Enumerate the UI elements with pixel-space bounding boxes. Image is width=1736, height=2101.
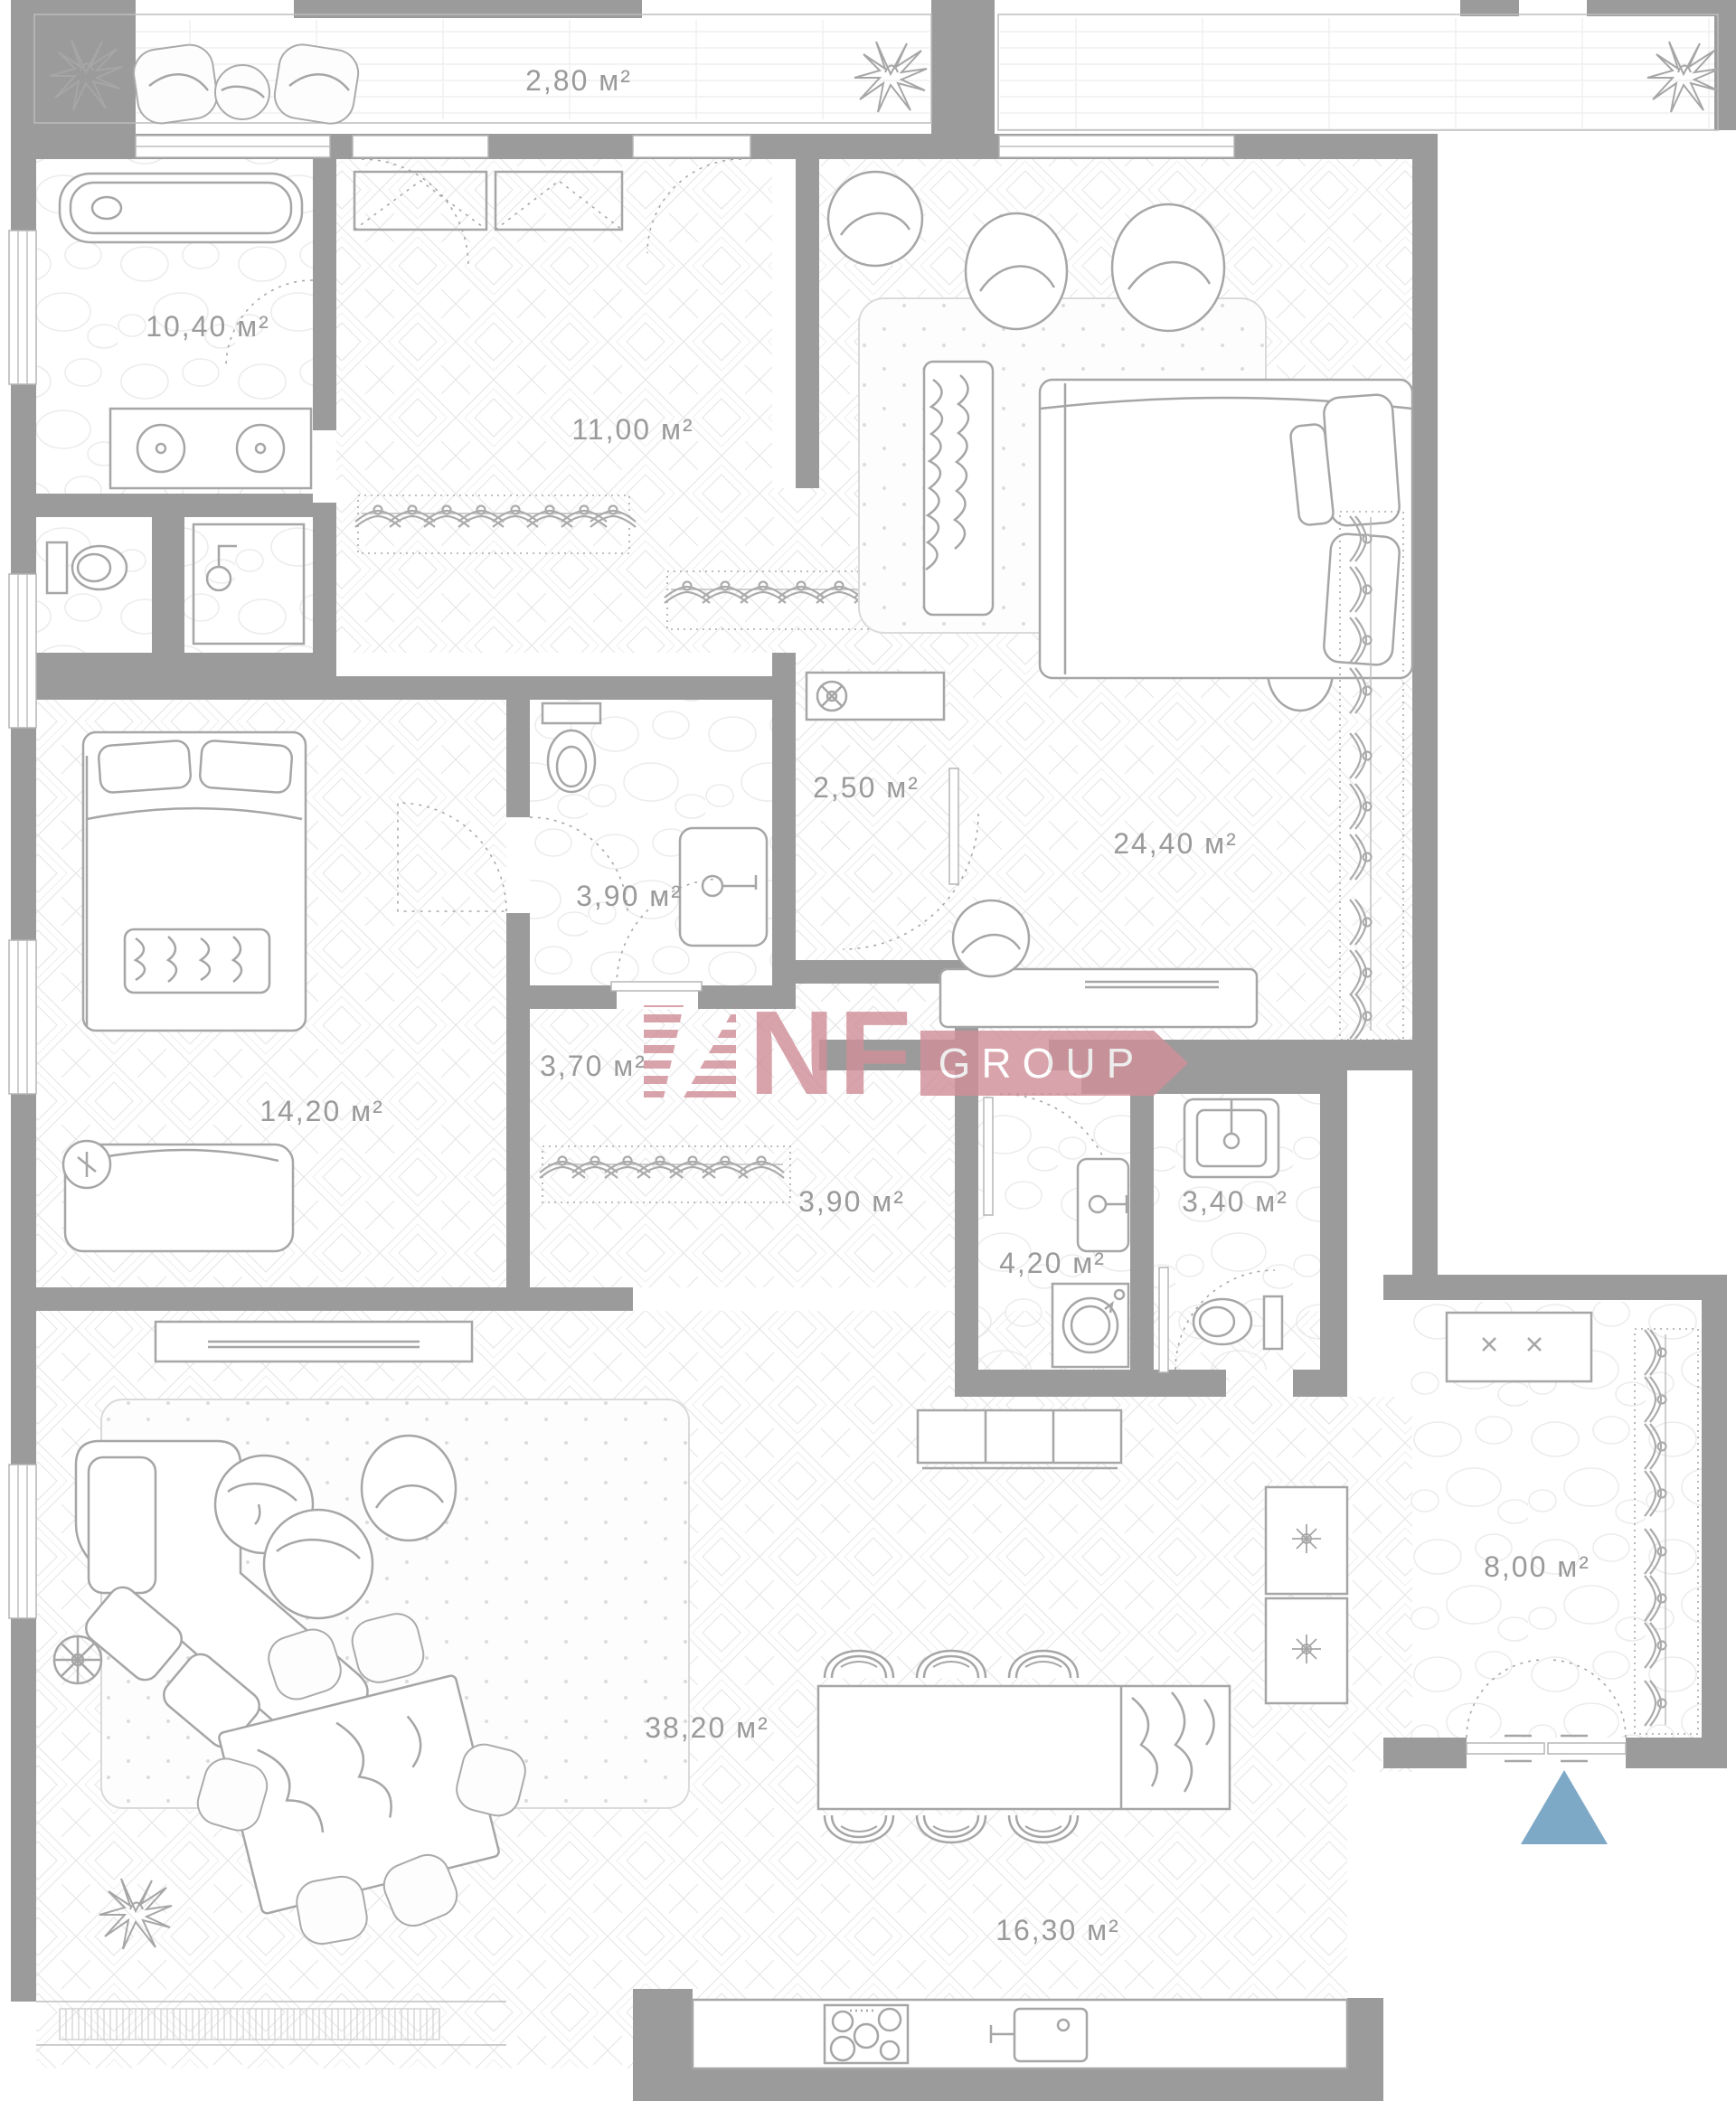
room-label-laundry: 4,20 м² (999, 1247, 1106, 1279)
room-label-corridor-2: 3,90 м² (798, 1185, 905, 1218)
door-leaf (1159, 1267, 1168, 1372)
tv-console (156, 1322, 472, 1361)
washing-machine (1052, 1284, 1128, 1367)
armchair (362, 1436, 456, 1540)
room-label-master-bath: 10,40 м² (146, 310, 270, 343)
bathtub (60, 174, 302, 242)
bed-double (1040, 380, 1412, 678)
bed-double (83, 732, 306, 1031)
lounge-chair (131, 42, 221, 126)
window-bedroom-master (999, 136, 1234, 157)
wall-hung-toilet (47, 542, 127, 593)
electrical-panel (807, 673, 944, 720)
floor-plan-canvas: 2,80 м² 10,40 м² 11,00 м² 24,40 м² 2,50 … (0, 0, 1736, 2101)
window-top-bathroom (136, 136, 330, 157)
window-left-3 (9, 940, 36, 1094)
pillow (98, 740, 191, 794)
blanket (125, 929, 269, 993)
dining-chair (293, 1873, 370, 1947)
wall-hung-toilet (1193, 1296, 1282, 1349)
room-label-wc: 3,40 м² (1182, 1185, 1288, 1218)
washbasin (1184, 1099, 1278, 1177)
pillow (199, 740, 292, 794)
armchair (1112, 204, 1224, 331)
laundry-sink (1078, 1159, 1128, 1251)
washbasin (680, 828, 767, 946)
group-banner-text: GROUP (939, 1040, 1146, 1087)
window-left-1 (9, 231, 36, 384)
double-vanity (110, 409, 311, 488)
room-label-wardrobe-hall: 11,00 м² (571, 413, 693, 446)
window-left-2 (9, 574, 36, 728)
side-table (215, 65, 269, 119)
nf-logo-text: NF (749, 986, 915, 1119)
kitchen-cabinets (918, 1410, 1121, 1468)
room-label-hall-nook: 2,50 м² (813, 771, 920, 804)
door-leaf (949, 768, 958, 884)
terrace-right-floor (1000, 18, 1716, 130)
armchair (828, 172, 922, 266)
bed-runner (924, 362, 993, 615)
coffee-table (264, 1510, 373, 1618)
kitchen-counter (693, 2000, 1347, 2068)
wardrobe-hall-floor (336, 159, 772, 653)
floor-plan-drawing: 2,80 м² 10,40 м² 11,00 м² 24,40 м² 2,50 … (0, 0, 1736, 2101)
kitchen-island (818, 1686, 1230, 1809)
desk-chair (953, 900, 1029, 976)
terrace-threshold (60, 2009, 439, 2040)
armchair (966, 213, 1067, 329)
room-label-bathroom-2: 3,90 м² (576, 880, 683, 912)
room-label-balcony: 2,80 м² (525, 64, 632, 97)
room-label-kitchen: 16,30 м² (995, 1914, 1120, 1946)
room-label-master-bedroom: 24,40 м² (1113, 827, 1238, 860)
wall-hung-toilet (542, 703, 600, 792)
entrance-arrow-icon (1521, 1770, 1608, 1844)
room-label-entrance-hall: 8,00 м² (1484, 1550, 1590, 1583)
lounge-chair (271, 42, 362, 127)
room-label-living-room: 38,20 м² (645, 1711, 769, 1744)
door-leaf (984, 1098, 993, 1215)
shower-room-floor (184, 517, 313, 653)
pillow (1323, 394, 1401, 527)
window-left-4 (9, 1465, 36, 1618)
entry-cabinet (1447, 1313, 1591, 1381)
room-label-corridor-1: 3,70 м² (540, 1050, 646, 1082)
sofa-bench (63, 1141, 293, 1251)
floor-lamp (54, 1636, 101, 1683)
door-leaf (611, 982, 702, 991)
room-label-bedroom-2: 14,20 м² (259, 1095, 384, 1127)
